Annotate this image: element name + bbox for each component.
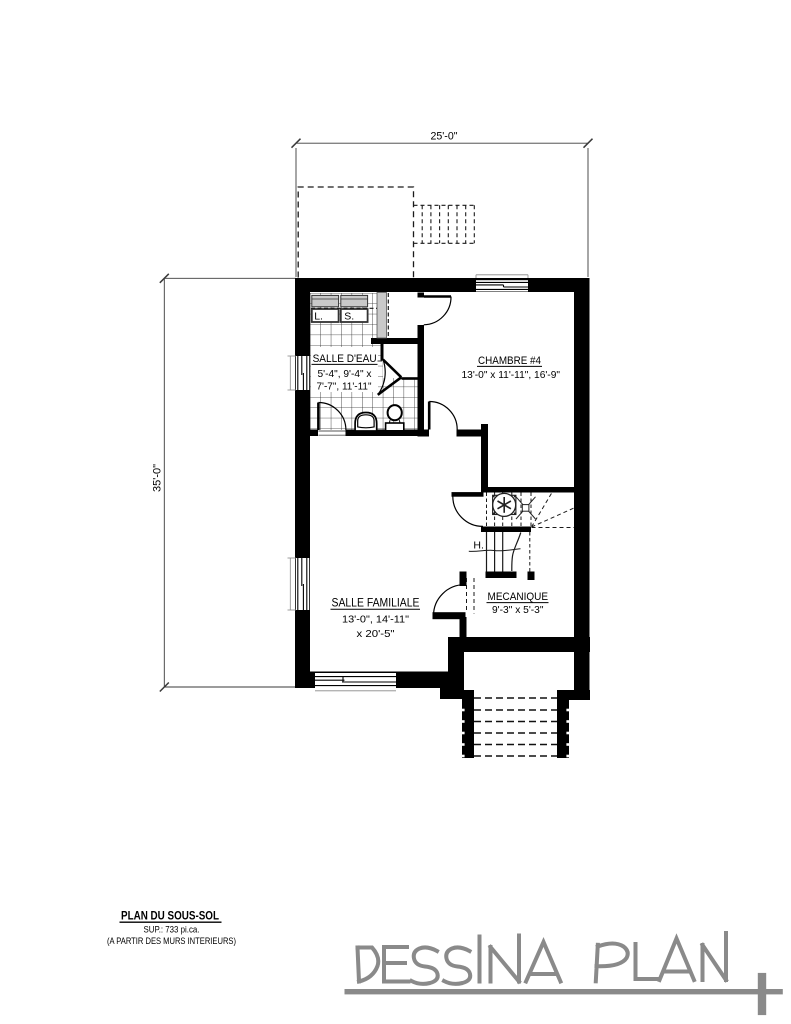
svg-text:13'-0" x 11'-11", 16'-9": 13'-0" x 11'-11", 16'-9" [462, 369, 561, 381]
svg-text:9'-3" x 5'-3": 9'-3" x 5'-3" [492, 604, 544, 616]
svg-text:SUP.: 733 pi.ca.: SUP.: 733 pi.ca. [144, 925, 200, 935]
svg-text:7'-7", 11'-11": 7'-7", 11'-11" [317, 381, 372, 393]
svg-text:L.: L. [314, 310, 323, 322]
svg-text:SALLE D'EAU: SALLE D'EAU [313, 353, 377, 365]
svg-text:MECANIQUE: MECANIQUE [488, 591, 549, 603]
svg-text:5'-4", 9'-4" x: 5'-4", 9'-4" x [318, 368, 373, 380]
svg-text:(A PARTIR DES MURS INTERIEURS): (A PARTIR DES MURS INTERIEURS) [107, 936, 236, 946]
svg-text:35'-0": 35'-0" [152, 464, 164, 492]
svg-text:x 20'-5": x 20'-5" [357, 628, 395, 640]
svg-text:CHAMBRE #4: CHAMBRE #4 [478, 355, 541, 367]
svg-text:SALLE FAMILIALE: SALLE FAMILIALE [332, 598, 420, 610]
svg-text:H.: H. [473, 540, 484, 552]
svg-text:S.: S. [344, 310, 354, 322]
svg-text:PLAN DU SOUS-SOL: PLAN DU SOUS-SOL [121, 909, 219, 923]
svg-text:13'-0", 14'-11": 13'-0", 14'-11" [342, 614, 409, 626]
svg-text:25'-0": 25'-0" [431, 131, 458, 143]
